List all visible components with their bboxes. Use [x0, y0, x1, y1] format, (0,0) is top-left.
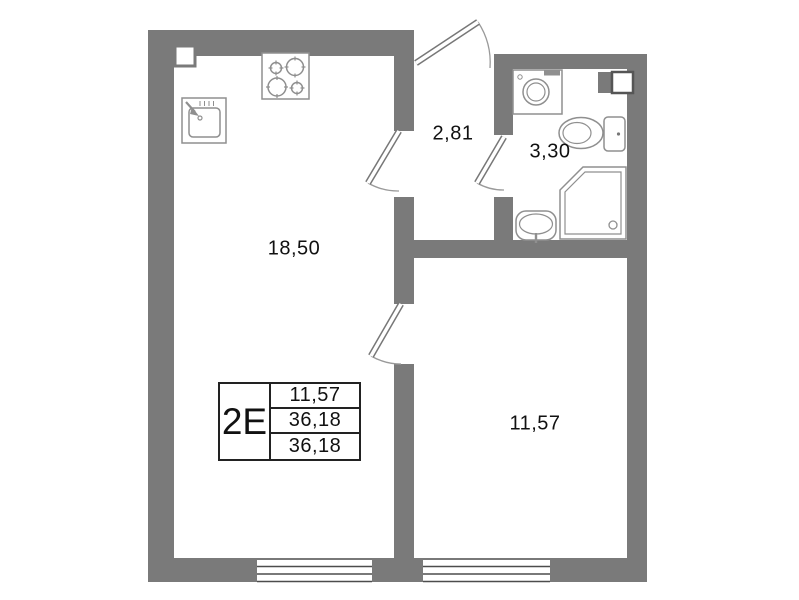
apartment-type-label: 2E	[220, 384, 271, 459]
wall-divider-top	[394, 30, 414, 131]
stove-icon	[262, 53, 309, 99]
room-area-label-bathroom: 3,30	[530, 141, 571, 164]
living-area-value: 11,57	[271, 384, 359, 409]
doors	[368, 22, 504, 364]
room-area-label-kitchen-living: 18,50	[268, 238, 321, 261]
wall-divider-bottom	[394, 364, 414, 558]
wall-bottom-left	[148, 558, 257, 582]
window-room	[423, 557, 550, 583]
wall-bathroom-left-upper	[494, 54, 513, 135]
vent-shaft-icon	[598, 72, 633, 93]
shower-icon	[560, 167, 626, 239]
room-area-label-room: 11,57	[509, 413, 560, 436]
wall-bathroom-top	[494, 54, 647, 69]
wall-right	[627, 54, 647, 582]
floor-plan: 18,50 2,81 3,30 11,57 2E 11,57 36,18 36,…	[0, 0, 799, 600]
bathroom-door	[477, 137, 504, 190]
wall-left	[148, 30, 174, 582]
kitchen-hall-door	[368, 131, 399, 191]
apartment-info-table: 2E 11,57 36,18 36,18	[218, 382, 361, 461]
wall-bottom-right	[550, 558, 647, 582]
wall-bathroom-left-lower	[494, 197, 513, 242]
room-area-label-hallway: 2,81	[433, 123, 474, 146]
overall-area-value: 36,18	[271, 434, 359, 459]
bathroom-sink-icon	[516, 211, 556, 243]
vent-pillar-icon	[175, 46, 195, 66]
washing-machine-icon	[513, 70, 562, 114]
entry-door	[416, 22, 490, 68]
floor-plan-svg	[0, 0, 799, 600]
wall-divider-mid	[394, 197, 414, 304]
wall-bottom-pier	[372, 558, 423, 582]
apartment-areas: 11,57 36,18 36,18	[271, 384, 359, 459]
room-door	[371, 304, 401, 364]
kitchen-sink-icon	[182, 98, 226, 143]
wall-mid-horizontal	[414, 240, 647, 258]
total-area-value: 36,18	[271, 409, 359, 434]
window-living	[257, 557, 372, 583]
